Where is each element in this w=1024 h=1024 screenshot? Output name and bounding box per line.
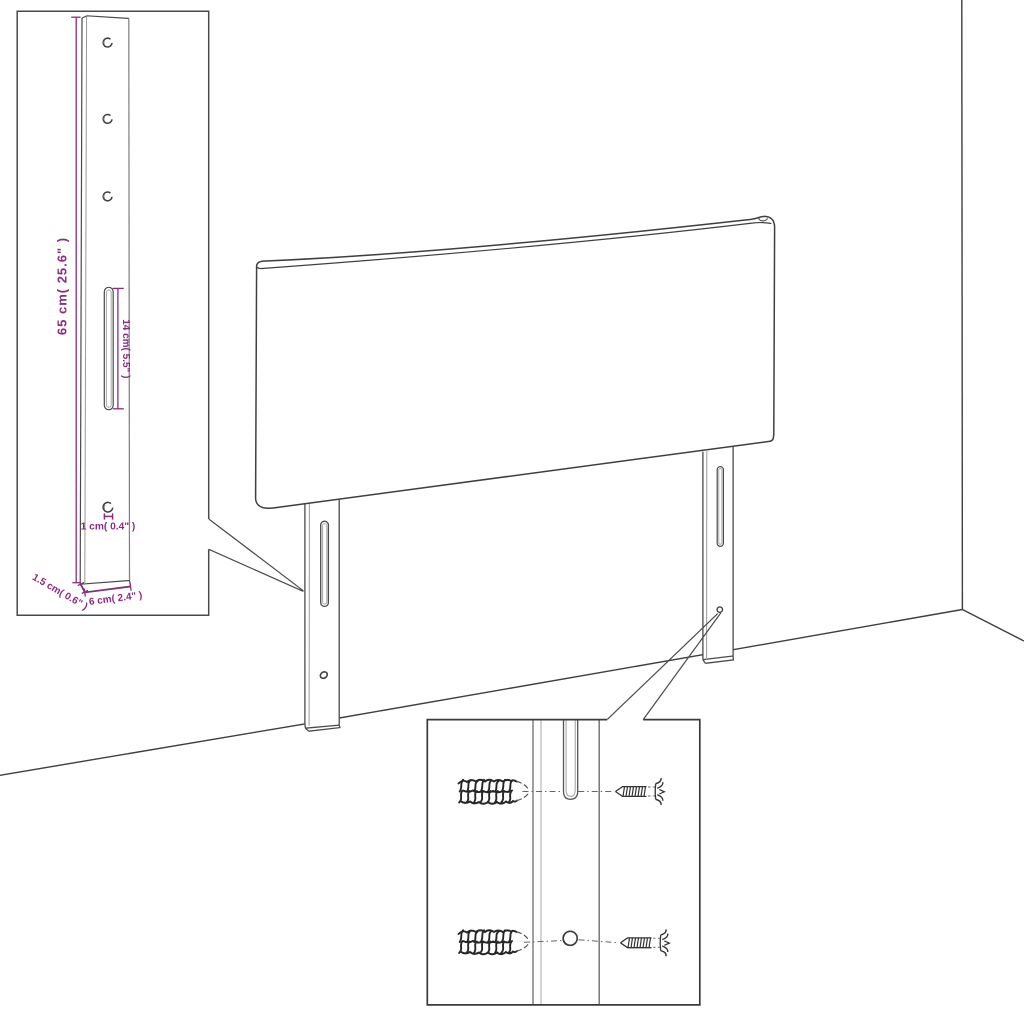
svg-text:14 cm( 5.5" ): 14 cm( 5.5" ) (120, 319, 131, 378)
svg-text:65 cm( 25.6" ): 65 cm( 25.6" ) (54, 237, 69, 335)
svg-text:1 cm( 0.4" ): 1 cm( 0.4" ) (81, 522, 136, 533)
